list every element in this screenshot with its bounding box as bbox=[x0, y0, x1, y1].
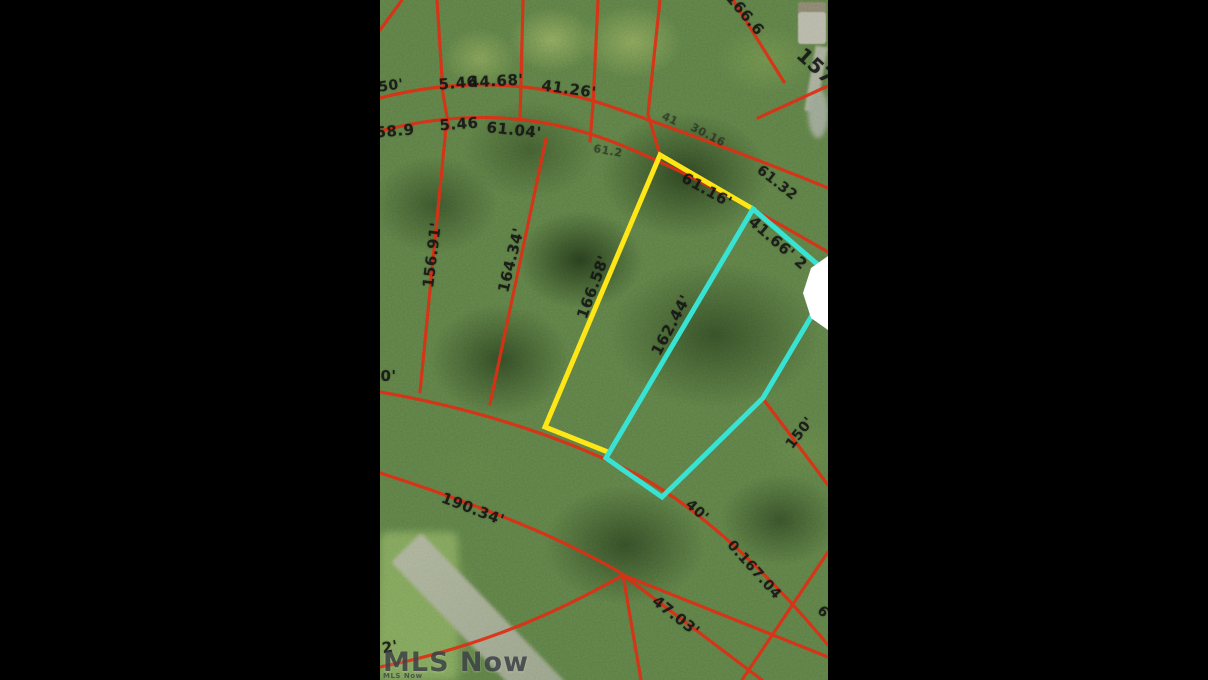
measurement-label: 166.6 bbox=[722, 0, 768, 39]
aerial-photo: 50'5.4644.68'41.26'166.615758.95.4661.04… bbox=[380, 0, 828, 680]
measurement-label: 61.16' bbox=[679, 169, 736, 211]
measurement-label: 164.34' bbox=[494, 226, 527, 294]
measurement-label: 166.58' bbox=[573, 253, 612, 321]
measurement-label: 47.03' bbox=[649, 592, 703, 640]
measurement-label: 61.04' bbox=[486, 118, 543, 142]
measurement-label: 30.16 bbox=[688, 121, 727, 150]
measurement-label: 0.167.04 bbox=[724, 537, 785, 602]
measurement-label: 41 bbox=[660, 110, 680, 129]
measurement-label: 61.2 bbox=[593, 142, 624, 160]
measurement-label: 40' bbox=[380, 367, 396, 385]
right-letterbox bbox=[828, 0, 1208, 680]
measurement-label: 190.34' bbox=[439, 489, 507, 529]
measurement-label: 58.9 bbox=[380, 120, 415, 141]
screenshot-stage: 50'5.4644.68'41.26'166.615758.95.4661.04… bbox=[0, 0, 1208, 680]
measurement-label: 40' bbox=[682, 497, 711, 526]
measurement-label: 5.46 bbox=[439, 114, 479, 135]
left-letterbox bbox=[0, 0, 380, 680]
measurement-label: 61.32 bbox=[754, 162, 801, 203]
mls-watermark-subtext: MLS Now bbox=[383, 673, 529, 680]
measurement-label: 41.26' bbox=[540, 76, 597, 101]
measurement-label: 44.68' bbox=[468, 71, 524, 92]
measurement-label: 41.66' 2 bbox=[745, 213, 811, 274]
measurement-label: 150' bbox=[783, 414, 817, 452]
measurement-label: 50' bbox=[380, 76, 405, 95]
measurement-label: 162.44' bbox=[648, 292, 695, 359]
measurement-labels: 50'5.4644.68'41.26'166.615758.95.4661.04… bbox=[380, 0, 828, 680]
measurement-label: 6 bbox=[814, 603, 828, 622]
measurement-label: 156.91' bbox=[419, 221, 445, 289]
measurement-label: 157 bbox=[792, 43, 828, 90]
mls-watermark: MLS Now MLS Now bbox=[383, 649, 529, 680]
